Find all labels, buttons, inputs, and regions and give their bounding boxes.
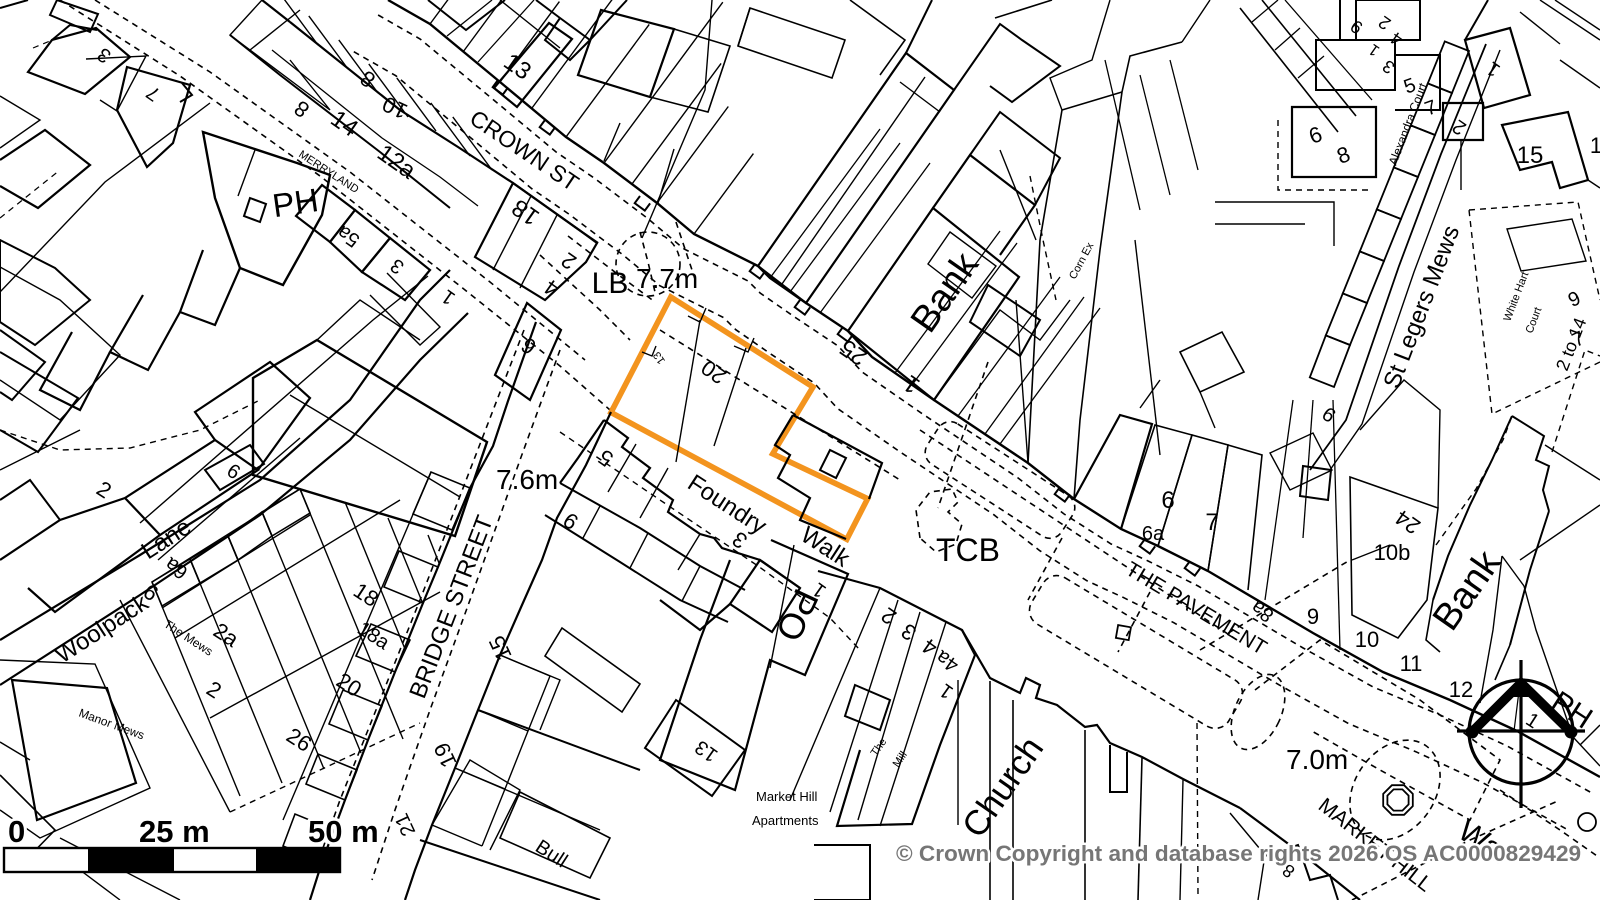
svg-text:10b: 10b (1374, 540, 1411, 565)
svg-text:7.7m: 7.7m (636, 263, 698, 294)
svg-text:7.6m: 7.6m (496, 464, 558, 495)
svg-text:6: 6 (1161, 487, 1174, 514)
svg-text:© Crown Copyright and database: © Crown Copyright and database rights 20… (896, 841, 1581, 866)
svg-text:0: 0 (8, 814, 25, 849)
svg-text:15: 15 (1517, 142, 1544, 169)
svg-text:7: 7 (1205, 509, 1218, 536)
svg-text:PH: PH (270, 181, 321, 224)
svg-text:9: 9 (1307, 604, 1319, 629)
svg-text:25 m: 25 m (139, 814, 210, 849)
svg-text:10: 10 (1355, 627, 1379, 652)
svg-text:12: 12 (1449, 677, 1473, 702)
svg-text:50 m: 50 m (308, 814, 379, 849)
svg-text:11: 11 (1400, 651, 1423, 676)
svg-text:Market Hill: Market Hill (756, 789, 818, 804)
svg-text:1: 1 (1590, 133, 1600, 158)
svg-text:Apartments: Apartments (752, 813, 819, 828)
svg-text:7.0m: 7.0m (1286, 744, 1348, 775)
svg-text:6a: 6a (1142, 523, 1165, 545)
svg-text:LB: LB (592, 267, 629, 300)
svg-text:TCB: TCB (936, 532, 1000, 568)
